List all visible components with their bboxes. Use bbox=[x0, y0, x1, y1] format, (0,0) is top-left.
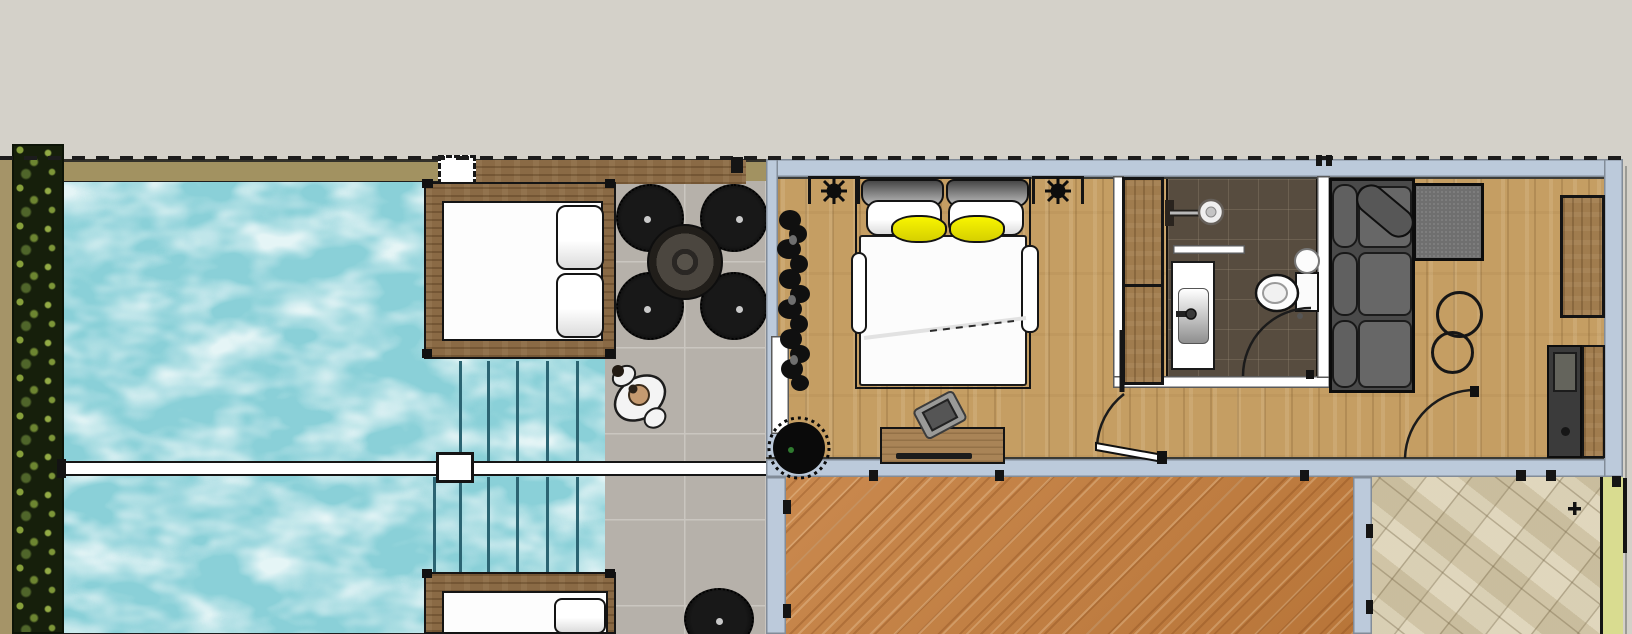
frame-tick bbox=[1546, 470, 1556, 481]
sofa-seat-cushion bbox=[1358, 252, 1412, 316]
hedge bbox=[12, 144, 64, 634]
desk-keyboard bbox=[896, 453, 972, 459]
minibar-cabinet bbox=[1547, 345, 1582, 458]
frame-tick bbox=[783, 604, 791, 618]
frame-tick bbox=[783, 500, 791, 514]
frame-tick bbox=[1612, 476, 1621, 487]
wall-right bbox=[1604, 159, 1623, 477]
nightstand-right bbox=[1032, 176, 1084, 204]
bed-pillow-yellow bbox=[949, 215, 1005, 243]
pool-fence-rail bbox=[459, 361, 462, 461]
daybed-pillow bbox=[556, 205, 604, 270]
sofa-back-cushion bbox=[1332, 252, 1358, 316]
frame-tick bbox=[1300, 470, 1309, 481]
ottoman bbox=[1413, 183, 1484, 261]
stone-patio-texture bbox=[1372, 477, 1600, 634]
wardrobe-divider bbox=[1125, 284, 1161, 287]
pool-fence-rail bbox=[433, 477, 436, 574]
wall-top bbox=[766, 159, 1623, 179]
coffee-table bbox=[1436, 291, 1483, 338]
laptop bbox=[922, 398, 959, 432]
boundary-dashed-line bbox=[0, 156, 1632, 160]
coffee-table bbox=[1431, 331, 1474, 374]
frame-tick bbox=[1516, 470, 1526, 481]
orange-hardwood-deck bbox=[786, 477, 1353, 634]
pool-fence-rail bbox=[546, 477, 549, 574]
nightstand-left bbox=[808, 176, 860, 204]
frame-tick bbox=[1366, 524, 1373, 538]
pool-deck-strip bbox=[476, 160, 746, 184]
bed-side-roll bbox=[1021, 245, 1039, 333]
bed-duvet bbox=[859, 235, 1027, 386]
pool-fence-rail bbox=[487, 477, 490, 574]
outdoor-dining-table bbox=[647, 224, 723, 300]
pool-fence-rail bbox=[546, 361, 549, 461]
wardrobe bbox=[1122, 177, 1164, 385]
stone-patio bbox=[1372, 477, 1600, 634]
pool-fence-rail bbox=[516, 361, 519, 461]
pool-fence-rail bbox=[487, 361, 490, 461]
right-edge-line bbox=[1625, 166, 1627, 634]
frame-tick bbox=[731, 157, 743, 173]
sofa-seat-cushion bbox=[1358, 320, 1412, 388]
right-edge-line-dark bbox=[1623, 478, 1627, 553]
pool-fence-rail bbox=[576, 361, 579, 461]
sofa-back-cushion bbox=[1332, 320, 1358, 388]
frame-tick bbox=[1326, 155, 1332, 166]
vanity-basin bbox=[1178, 288, 1209, 344]
bed-side-roll bbox=[851, 252, 867, 334]
minibar-knob bbox=[1561, 427, 1570, 436]
pool-divider-wall bbox=[60, 461, 766, 476]
floorplan-canvas[interactable] bbox=[0, 0, 1632, 634]
divider-end-cap bbox=[57, 459, 66, 478]
pool-fence-rail bbox=[516, 477, 519, 574]
daybed-pillow bbox=[556, 273, 604, 338]
chair-button bbox=[644, 306, 651, 313]
minibar-counter bbox=[1582, 345, 1605, 458]
chair-button bbox=[736, 216, 743, 223]
sofa-back-cushion bbox=[1332, 184, 1358, 248]
grass-strip bbox=[1600, 477, 1623, 634]
bed-pillow-yellow bbox=[891, 215, 947, 243]
frame-tick bbox=[1366, 600, 1373, 614]
frame-tick bbox=[1316, 155, 1322, 166]
pool-fence-rail bbox=[576, 477, 579, 574]
frame-tick bbox=[869, 470, 878, 481]
chair-button bbox=[736, 306, 743, 313]
sliding-door bbox=[771, 336, 789, 434]
pool-fence-rail bbox=[459, 477, 462, 574]
minibar-sink bbox=[1553, 352, 1577, 392]
divider-post bbox=[436, 452, 474, 483]
shower-screen bbox=[1173, 245, 1245, 254]
frame-tick bbox=[995, 470, 1004, 481]
daybed-pillow bbox=[554, 598, 606, 634]
chair-button bbox=[644, 216, 651, 223]
console-table bbox=[1560, 195, 1605, 318]
chair-button bbox=[716, 618, 723, 625]
